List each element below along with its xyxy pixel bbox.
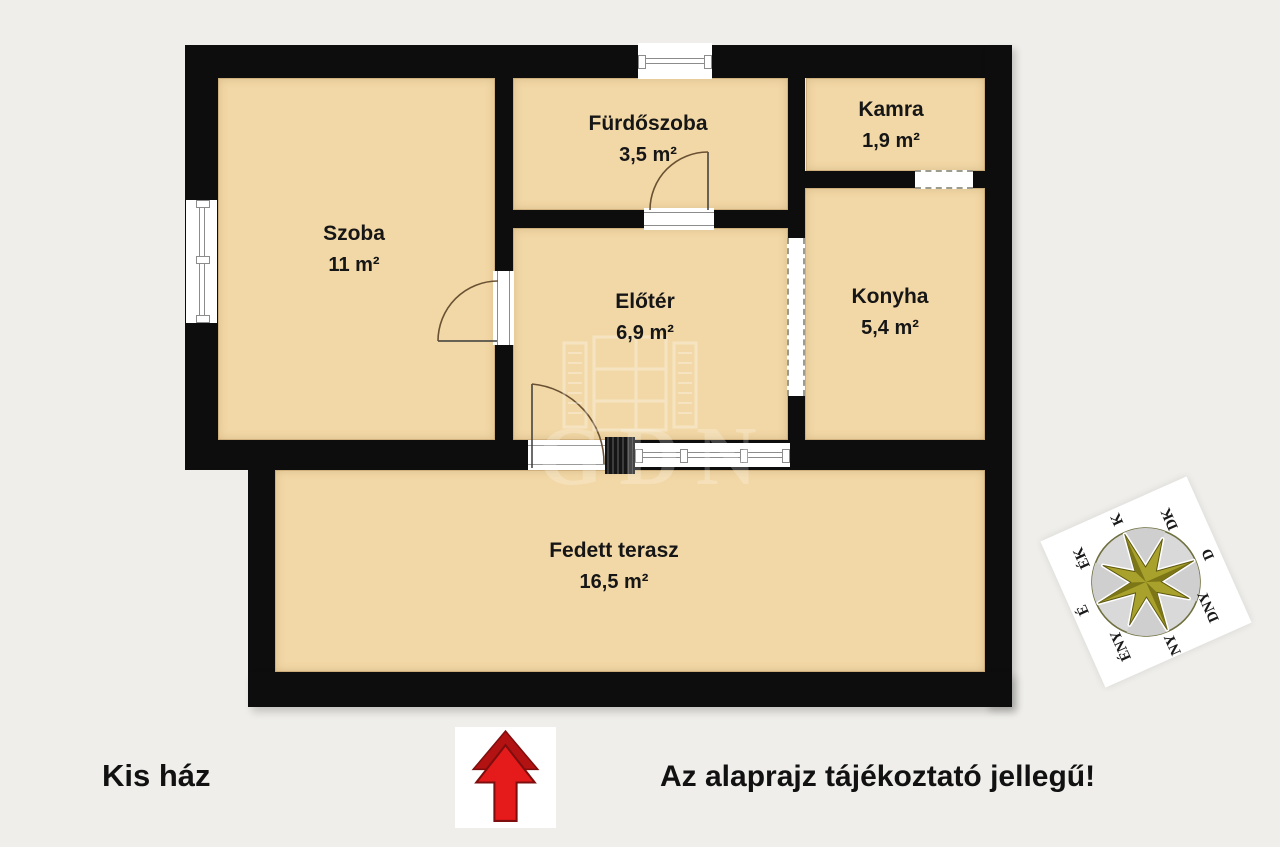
- label-konyha: Konyha 5,4 m²: [790, 284, 990, 341]
- label-furdoszoba: Fürdőszoba 3,5 m²: [548, 111, 748, 168]
- room-name: Előtér: [545, 289, 745, 315]
- door-frame: [644, 212, 714, 226]
- window-cap: [196, 256, 210, 264]
- agency-logo: [455, 727, 556, 828]
- label-szoba: Szoba 11 m²: [254, 221, 454, 278]
- door-opening-furdoszoba: [644, 208, 714, 230]
- passage-kamra-konyha: [915, 170, 973, 189]
- door-frame: [497, 271, 510, 345]
- room-area: 5,4 m²: [790, 315, 990, 341]
- room-area: 1,9 m²: [791, 128, 991, 154]
- room-name: Fürdőszoba: [548, 111, 748, 137]
- plan-title: Kis ház: [102, 758, 211, 794]
- window-glass: [641, 58, 709, 64]
- room-name: Szoba: [254, 221, 454, 247]
- window-cap: [196, 200, 210, 208]
- window-cap: [638, 55, 646, 69]
- watermark-text: GDN: [538, 408, 773, 505]
- room-area: 16,5 m²: [514, 569, 714, 595]
- label-kamra: Kamra 1,9 m²: [791, 97, 991, 154]
- compass-rose-icon: [1040, 476, 1251, 687]
- wall-terrace-left: [248, 440, 275, 707]
- window-top-icon: [638, 43, 712, 79]
- room-area: 11 m²: [254, 252, 454, 278]
- window-cap: [704, 55, 712, 69]
- window-cap: [782, 449, 790, 463]
- red-house-arrow-icon: [455, 727, 556, 828]
- door-opening-szoba: [493, 271, 514, 345]
- room-area: 6,9 m²: [545, 320, 745, 346]
- wall-outer-top: [185, 45, 1012, 78]
- room-name: Konyha: [790, 284, 990, 310]
- compass-card: É ÉK K DK D DNY NY ÉNY: [1040, 476, 1251, 687]
- floorplan-canvas: GDN Szoba 11 m² Fürdőszoba 3,5 m² Kamra …: [0, 0, 1280, 847]
- room-name: Fedett terasz: [514, 538, 714, 564]
- label-fedett-terasz: Fedett terasz 16,5 m²: [514, 538, 714, 595]
- room-area: 3,5 m²: [548, 142, 748, 168]
- room-name: Kamra: [791, 97, 991, 123]
- disclaimer-text: Az alaprajz tájékoztató jellegű!: [660, 760, 1095, 794]
- label-eloter: Előtér 6,9 m²: [545, 289, 745, 346]
- window-cap: [196, 315, 210, 323]
- window-left-icon: [186, 200, 217, 323]
- wall-terrace-bottom: [248, 672, 1012, 707]
